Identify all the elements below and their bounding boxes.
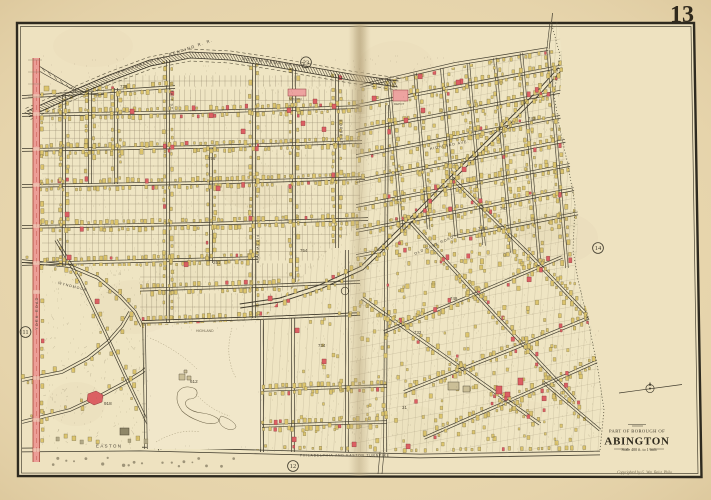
svg-text:Scale 400 ft. to 1 inch: Scale 400 ft. to 1 inch: [621, 447, 656, 452]
svg-text:918: 918: [104, 401, 112, 406]
svg-text:TAIT ST.: TAIT ST.: [170, 90, 174, 112]
svg-text:FORREST: FORREST: [339, 120, 344, 144]
svg-text:738: 738: [120, 84, 128, 89]
svg-text:754: 754: [300, 248, 308, 253]
svg-text:13: 13: [670, 2, 694, 28]
svg-text:747: 747: [500, 206, 508, 211]
svg-text:251: 251: [213, 260, 221, 265]
svg-text:734: 734: [318, 343, 326, 348]
svg-text:23: 23: [303, 59, 309, 66]
svg-text:749: 749: [450, 296, 458, 301]
svg-text:743: 743: [528, 116, 536, 121]
svg-text:12: 12: [290, 463, 296, 470]
svg-text:745: 745: [478, 226, 486, 231]
svg-text:11: 11: [22, 329, 28, 336]
svg-text:756: 756: [208, 156, 216, 161]
svg-text:HIGHLAND: HIGHLAND: [196, 329, 214, 333]
svg-text:PHILADELPHIA AND EASTON TURNPI: PHILADELPHIA AND EASTON TURNPIKE: [300, 454, 390, 458]
svg-text:612: 612: [190, 379, 198, 384]
svg-text:ABINGTON: ABINGTON: [604, 436, 669, 448]
svg-text:EASTON: EASTON: [96, 444, 122, 449]
svg-text:PART OF BOROUGH OF: PART OF BOROUGH OF: [609, 429, 665, 434]
svg-text:FITZWATER: FITZWATER: [256, 235, 260, 264]
svg-text:STATION: STATION: [289, 97, 302, 101]
svg-text:DEPOT: DEPOT: [394, 102, 405, 106]
svg-text:YORK ROAD: YORK ROAD: [35, 296, 39, 330]
